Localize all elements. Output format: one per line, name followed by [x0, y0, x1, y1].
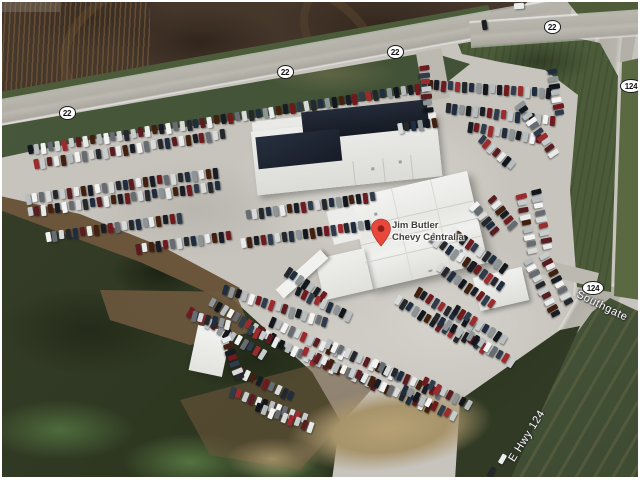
parked-car	[159, 188, 165, 199]
parked-car	[393, 87, 400, 99]
parked-car	[455, 82, 461, 92]
parked-car	[74, 152, 81, 163]
parked-car	[157, 139, 164, 150]
parked-car	[497, 85, 502, 95]
parked-car	[551, 89, 561, 96]
parked-car	[193, 118, 199, 128]
parked-car	[144, 126, 150, 138]
parked-car	[273, 206, 279, 217]
parked-car	[404, 122, 410, 132]
parked-car	[115, 181, 121, 191]
satellite-map[interactable]: 22222222124124E Hwy 124Southgate Jim But…	[0, 0, 640, 480]
parked-car	[494, 126, 501, 136]
parked-car	[487, 108, 493, 119]
shield-124-a: 124	[620, 79, 640, 93]
parked-car	[211, 233, 217, 244]
parked-car	[523, 227, 534, 234]
parked-cars-layer	[0, 0, 640, 480]
parked-car	[75, 137, 81, 148]
parked-car	[156, 216, 162, 228]
parked-car	[445, 103, 451, 113]
parked-car	[95, 149, 101, 160]
parked-car	[548, 76, 559, 83]
parked-car	[302, 229, 308, 240]
shield-22-a: 22	[59, 106, 76, 120]
parked-car	[190, 236, 197, 247]
parked-car	[309, 228, 316, 240]
parked-car	[96, 134, 103, 145]
parked-car	[199, 117, 206, 128]
parked-car	[145, 190, 151, 201]
parked-car	[535, 209, 546, 216]
parked-car	[310, 100, 317, 112]
parked-car	[86, 226, 92, 237]
parked-car	[191, 170, 197, 182]
parked-car	[259, 208, 265, 219]
parked-car	[213, 130, 219, 140]
parked-car	[143, 141, 150, 153]
parked-car	[300, 202, 307, 214]
parked-car	[419, 72, 430, 78]
parked-car	[172, 122, 178, 132]
parked-car	[483, 84, 489, 95]
parked-car	[185, 135, 191, 147]
parked-car	[531, 188, 542, 195]
parked-car	[193, 183, 199, 193]
parked-car	[321, 317, 329, 328]
parked-car	[294, 203, 300, 213]
parked-car	[121, 221, 127, 231]
parked-car	[41, 205, 47, 216]
parked-car	[178, 172, 184, 181]
parked-car	[316, 227, 322, 237]
parked-car	[289, 103, 296, 115]
parked-car	[136, 142, 143, 153]
parked-car	[80, 186, 87, 197]
parked-car	[501, 128, 507, 139]
parked-car	[53, 190, 59, 200]
parked-car	[149, 242, 155, 252]
parked-car	[220, 129, 226, 140]
parked-car	[240, 238, 247, 249]
parked-car	[493, 109, 500, 121]
parked-car	[317, 99, 323, 109]
parked-car	[538, 222, 548, 229]
parked-car	[137, 127, 144, 138]
parked-car	[61, 202, 68, 214]
parked-car	[262, 107, 268, 118]
parked-car	[490, 84, 496, 93]
parked-car	[286, 204, 292, 214]
parked-car	[172, 186, 178, 196]
parked-car	[205, 168, 211, 179]
parked-car	[552, 96, 563, 103]
parked-car	[81, 151, 87, 163]
parked-car	[54, 140, 60, 151]
parked-car	[462, 82, 467, 93]
parked-car	[266, 207, 272, 217]
parked-car	[101, 183, 107, 194]
parked-car	[487, 125, 494, 137]
parked-car	[218, 232, 224, 243]
parked-car	[288, 231, 294, 242]
parked-car	[184, 237, 190, 246]
parked-car	[234, 112, 241, 122]
parked-car	[186, 119, 193, 131]
parked-car	[40, 158, 47, 170]
parked-car	[41, 143, 47, 155]
parked-car	[337, 224, 343, 234]
parked-car	[434, 80, 440, 90]
parked-car	[59, 189, 66, 200]
parked-car	[419, 65, 430, 71]
parked-car	[170, 173, 176, 185]
parked-car	[68, 138, 74, 148]
parked-car	[163, 240, 169, 250]
parked-car	[511, 86, 517, 95]
shield-22-c: 22	[387, 45, 404, 59]
parked-car	[206, 116, 213, 128]
parked-car	[48, 204, 54, 214]
parked-car	[93, 225, 99, 236]
parked-car	[45, 232, 52, 243]
parked-car	[47, 157, 53, 167]
place-label-line1: Jim Butler	[392, 220, 464, 232]
parked-car	[212, 167, 218, 178]
parked-car	[349, 195, 355, 205]
parked-car	[122, 180, 128, 191]
parked-car	[466, 105, 472, 115]
parked-car	[241, 111, 248, 122]
parked-car	[170, 214, 177, 225]
parked-car	[526, 240, 536, 246]
parked-car	[157, 175, 163, 185]
parked-car	[142, 218, 148, 228]
parked-car	[79, 227, 85, 237]
parked-car	[279, 205, 286, 217]
parked-car	[197, 235, 203, 247]
parked-car	[55, 203, 61, 214]
parked-car	[245, 210, 251, 220]
parked-car	[163, 215, 169, 224]
parked-car	[307, 201, 313, 211]
parked-car	[117, 194, 124, 205]
screenshot-root: { "window": {"width": 640, "height": 480…	[0, 0, 640, 480]
parked-car	[25, 194, 32, 206]
parked-car	[116, 146, 122, 157]
parked-car	[448, 81, 453, 90]
parked-car	[94, 184, 100, 194]
parked-car	[281, 232, 287, 243]
parked-car	[268, 234, 274, 246]
parked-car	[473, 106, 479, 118]
parked-car	[52, 231, 58, 243]
parked-car	[109, 147, 115, 157]
parked-car	[247, 237, 253, 249]
parked-car	[261, 235, 268, 246]
parked-car	[518, 86, 524, 96]
parked-car	[549, 116, 555, 126]
parked-car	[330, 225, 337, 237]
parked-car	[74, 187, 80, 196]
parked-car	[152, 189, 158, 199]
parked-car	[508, 129, 515, 141]
parked-car	[414, 83, 421, 95]
parked-car	[518, 199, 528, 206]
parked-car	[143, 177, 149, 187]
parked-car	[338, 95, 345, 105]
parked-car	[522, 131, 529, 142]
parked-car	[431, 118, 438, 129]
parked-car	[254, 236, 260, 245]
parked-car	[124, 193, 130, 205]
parked-car	[61, 139, 68, 151]
parked-car	[131, 192, 137, 202]
parked-car	[45, 191, 52, 203]
parked-car	[252, 209, 258, 220]
parked-car	[169, 239, 176, 250]
parked-car	[34, 206, 40, 217]
parked-car	[519, 206, 530, 213]
parked-car	[155, 241, 162, 253]
parked-car	[66, 188, 72, 200]
parked-car	[124, 129, 130, 141]
parked-car	[547, 68, 557, 75]
parked-car	[151, 125, 157, 135]
parked-car	[176, 238, 182, 250]
parked-car	[177, 213, 183, 225]
parked-car	[452, 104, 458, 116]
parked-car	[459, 104, 465, 114]
parked-car	[165, 123, 172, 135]
parked-car	[128, 220, 134, 230]
parked-car	[344, 223, 351, 234]
parked-car	[89, 135, 95, 145]
parked-car	[130, 128, 137, 138]
parked-car	[366, 91, 372, 102]
parked-car	[423, 99, 433, 105]
parked-car	[214, 115, 220, 125]
parked-car	[135, 244, 142, 256]
parked-car	[400, 86, 406, 96]
parked-car	[324, 98, 331, 109]
parked-car	[66, 229, 73, 240]
parked-car	[151, 140, 157, 150]
parked-car	[165, 187, 172, 199]
parked-car	[158, 124, 164, 135]
parked-car	[227, 113, 233, 125]
parked-car	[423, 107, 433, 113]
parked-car	[372, 90, 379, 102]
parked-car	[342, 196, 348, 208]
parked-car	[542, 115, 548, 125]
shield-22-d: 22	[544, 20, 561, 34]
parked-car	[27, 207, 33, 217]
parked-car	[87, 185, 93, 197]
parked-car	[352, 93, 358, 105]
parked-car	[149, 217, 156, 228]
parked-car	[407, 84, 414, 95]
parked-car	[100, 224, 106, 234]
parked-car	[205, 131, 212, 143]
parked-car	[179, 121, 185, 132]
parked-car	[527, 247, 538, 254]
parked-car	[88, 150, 94, 160]
parked-car	[178, 136, 185, 147]
parked-car	[515, 130, 522, 140]
parked-car	[425, 119, 431, 129]
parked-car	[283, 104, 289, 115]
parked-car	[82, 199, 89, 211]
parked-car	[411, 121, 417, 131]
map-pin[interactable]	[370, 218, 392, 248]
parked-car	[110, 132, 116, 142]
parked-car	[27, 145, 34, 155]
parked-car	[276, 105, 282, 115]
parked-car	[543, 243, 553, 250]
parked-car	[138, 191, 144, 202]
parked-car	[363, 193, 369, 204]
parked-car	[73, 228, 79, 240]
parked-car	[103, 133, 110, 145]
parked-car	[507, 110, 513, 121]
parked-car	[122, 144, 129, 156]
place-label[interactable]: Jim Butler Chevy Centralia	[392, 220, 464, 244]
parked-car	[225, 231, 231, 241]
parked-car	[200, 182, 207, 193]
parked-car	[331, 97, 337, 109]
parked-car	[179, 185, 185, 195]
parked-car	[321, 199, 327, 211]
parked-car	[68, 201, 74, 211]
parked-car	[525, 87, 531, 98]
parked-car	[474, 123, 480, 133]
parked-car	[501, 110, 507, 119]
parked-car	[184, 171, 191, 182]
place-label-line2: Chevy Centralia	[392, 232, 464, 244]
parked-car	[129, 179, 136, 191]
parked-car	[323, 226, 329, 236]
parked-car	[358, 221, 364, 230]
parked-car	[34, 144, 41, 155]
parked-car	[469, 83, 475, 92]
parked-car	[297, 102, 303, 112]
parked-car	[335, 197, 342, 208]
parked-car	[33, 159, 40, 170]
parked-car	[198, 169, 204, 179]
parked-car	[328, 198, 334, 207]
parked-car	[67, 153, 74, 163]
parked-car	[295, 230, 301, 240]
parked-car	[76, 200, 82, 210]
parked-car	[359, 92, 365, 102]
parked-car	[268, 106, 275, 118]
parked-car	[192, 133, 198, 143]
parked-car	[32, 193, 38, 203]
parked-car	[59, 230, 65, 239]
parked-car	[102, 148, 109, 160]
parked-car	[417, 120, 424, 132]
parked-car	[532, 87, 537, 96]
parked-car	[504, 85, 510, 96]
parked-car	[480, 124, 487, 135]
parked-car	[314, 200, 321, 211]
parked-car	[554, 110, 564, 116]
parked-car	[303, 101, 310, 112]
parked-car	[534, 202, 544, 208]
parked-car	[345, 94, 352, 105]
parked-car	[199, 132, 205, 143]
parked-car	[96, 197, 103, 208]
shield-124-b: 124	[582, 281, 604, 295]
parked-car	[539, 230, 550, 237]
parked-car	[186, 184, 193, 196]
parked-car	[103, 196, 109, 208]
parked-car	[171, 137, 178, 147]
parked-car	[539, 88, 545, 98]
parked-car	[220, 114, 227, 125]
parked-car	[356, 194, 362, 205]
parked-car	[110, 195, 116, 204]
parked-car	[130, 143, 136, 153]
parked-car	[108, 182, 114, 193]
parked-car	[207, 181, 213, 193]
parked-car	[379, 89, 385, 99]
parked-car	[114, 222, 121, 234]
parked-car	[370, 192, 376, 202]
parked-car	[164, 138, 170, 150]
parked-car	[117, 130, 124, 141]
parked-car	[142, 243, 148, 253]
parked-car	[441, 81, 447, 92]
parked-car	[386, 88, 392, 99]
parked-car	[135, 219, 142, 231]
parked-car	[467, 122, 473, 134]
parked-car	[47, 141, 53, 151]
parked-car	[421, 86, 432, 92]
parked-car	[480, 107, 486, 116]
shield-22-b: 22	[277, 65, 294, 79]
parked-car	[107, 223, 113, 234]
parked-car	[163, 174, 170, 185]
parked-car	[397, 123, 404, 135]
parked-car	[351, 222, 357, 234]
parked-car	[39, 192, 45, 202]
parked-car	[476, 83, 482, 93]
parked-car	[274, 233, 280, 243]
parked-car	[214, 180, 220, 189]
parked-car	[60, 154, 66, 166]
parked-car	[522, 220, 532, 227]
parked-car	[255, 108, 261, 118]
parked-car	[421, 79, 430, 85]
parked-car	[204, 234, 210, 244]
parked-car	[53, 155, 60, 166]
parked-car	[89, 198, 95, 208]
parked-car	[248, 110, 254, 122]
parked-car	[82, 136, 89, 148]
parked-car	[149, 176, 156, 188]
parked-car	[136, 178, 142, 188]
